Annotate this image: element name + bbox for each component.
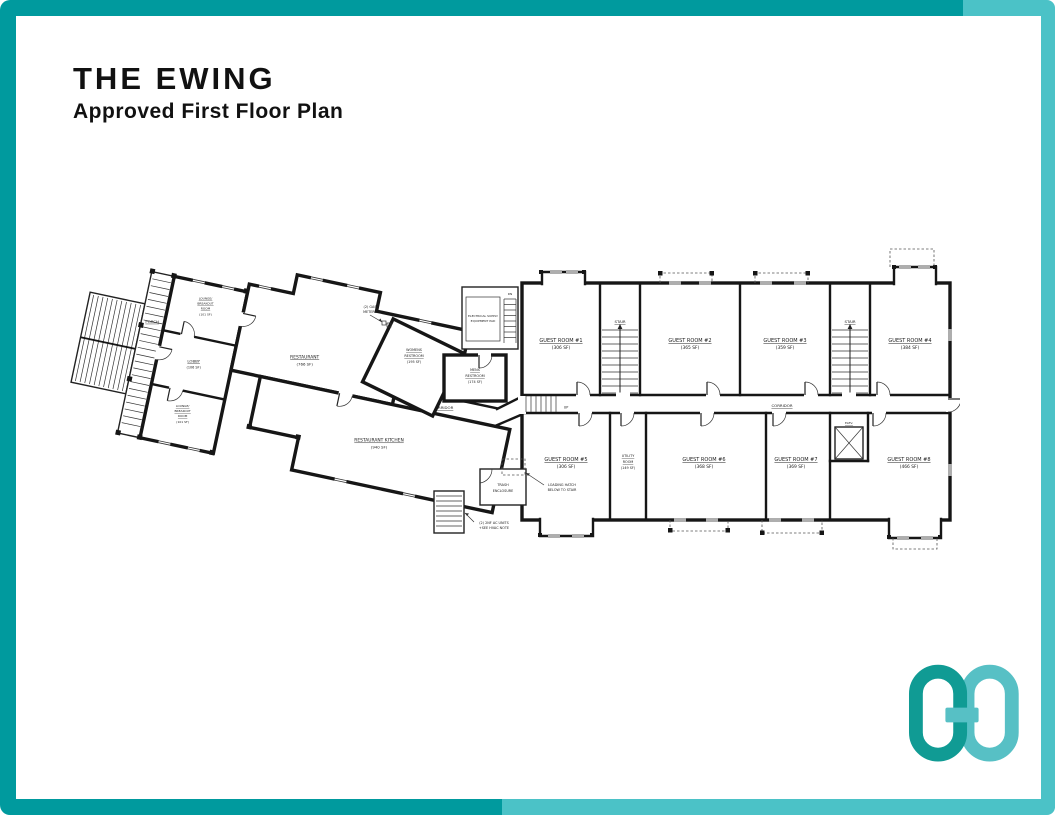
east-wing: GUEST ROOM #1 (306 SF) GUEST ROOM #2 (36…: [495, 249, 960, 549]
title-block: THE EWING Approved First Floor Plan: [73, 62, 343, 123]
svg-text:(195 SF): (195 SF): [407, 360, 422, 364]
svg-text:RESTAURANT KITCHEN: RESTAURANT KITCHEN: [354, 438, 403, 444]
svg-text:GUEST ROOM #4: GUEST ROOM #4: [888, 338, 931, 344]
svg-text:ENCLOSURE: ENCLOSURE: [493, 489, 514, 493]
room-label-stair-west: STAIR: [614, 319, 625, 324]
svg-text:(369 SF): (369 SF): [787, 464, 806, 470]
east-wing-outer-walls: [522, 283, 950, 520]
page-subtitle: Approved First Floor Plan: [73, 100, 343, 123]
svg-text:GUEST ROOM #3: GUEST ROOM #3: [763, 338, 806, 344]
svg-text:(384 SF): (384 SF): [901, 345, 920, 351]
svg-text:LOUNGE/: LOUNGE/: [176, 404, 191, 408]
svg-text:UTILITY: UTILITY: [622, 454, 636, 458]
svg-text:GUEST ROOM #1: GUEST ROOM #1: [539, 338, 582, 344]
svg-text:LOADING HATCH: LOADING HATCH: [548, 483, 576, 487]
svg-text:(2) 2NF AC UNITS: (2) 2NF AC UNITS: [479, 521, 509, 525]
frame-top-bar: [0, 0, 963, 16]
svg-text:RESTROOM: RESTROOM: [465, 374, 484, 378]
svg-text:ROOM: ROOM: [201, 307, 211, 311]
room-label-stair-east: STAIR: [844, 319, 855, 324]
trash-enclosure: TRASH ENCLOSURE: [480, 469, 526, 505]
svg-text:GUEST ROOM #2: GUEST ROOM #2: [668, 338, 711, 344]
room-label-porch: PORCH: [145, 319, 159, 324]
svg-text:(106 SF): (106 SF): [186, 365, 201, 369]
svg-text:LOUNGE/: LOUNGE/: [199, 297, 214, 301]
svg-text:+SEE HVAC NOTE: +SEE HVAC NOTE: [479, 526, 509, 530]
back-stair: [434, 491, 464, 533]
svg-text:(101 SF): (101 SF): [176, 420, 189, 424]
room-label-corridor-east: CORRIDOR: [771, 403, 792, 408]
brand-logo: [903, 660, 1021, 770]
svg-text:GUEST ROOM #7: GUEST ROOM #7: [774, 457, 817, 463]
svg-text:(306 SF): (306 SF): [557, 464, 576, 470]
floor-plan-drawing: PORCH LOUNGE/ BREAKOUT ROOM (101 SF) LOB…: [60, 235, 960, 555]
mens-restroom-walls: [444, 355, 506, 401]
svg-text:GUEST ROOM #5: GUEST ROOM #5: [544, 457, 587, 463]
svg-text:GUEST ROOM #8: GUEST ROOM #8: [887, 457, 930, 463]
svg-text:(174 SF): (174 SF): [468, 380, 483, 384]
svg-text:(766 SF): (766 SF): [296, 361, 313, 366]
frame-left-bar: [0, 10, 16, 800]
svg-text:GUEST ROOM #6: GUEST ROOM #6: [682, 457, 725, 463]
frame-right-bar: [1041, 8, 1055, 808]
svg-text:RESTROOM: RESTROOM: [404, 354, 423, 358]
svg-text:ELECTRICAL SUPPLY: ELECTRICAL SUPPLY: [468, 314, 498, 318]
svg-text:LOBBY: LOBBY: [187, 358, 200, 363]
svg-text:BREAKOUT: BREAKOUT: [197, 302, 213, 306]
svg-text:(368 SF): (368 SF): [695, 464, 714, 470]
svg-text:BREAKOUT: BREAKOUT: [174, 409, 190, 413]
svg-text:BELOW TO STAIR: BELOW TO STAIR: [548, 488, 577, 492]
page-title: THE EWING: [73, 62, 343, 96]
up-label: UP: [564, 406, 569, 410]
svg-text:(101 SF): (101 SF): [199, 313, 212, 317]
svg-text:WOMENS: WOMENS: [406, 348, 422, 352]
frame-bottom-bar-dark: [0, 799, 502, 815]
svg-text:(940 SF): (940 SF): [371, 445, 388, 450]
room-label-elevator: ELEV.: [845, 421, 853, 425]
svg-text:ROOM: ROOM: [178, 414, 188, 418]
svg-text:(306 SF): (306 SF): [552, 345, 571, 351]
svg-text:TRASH: TRASH: [496, 483, 509, 487]
svg-text:(466 SF): (466 SF): [900, 464, 919, 470]
interlocking-rings-icon: [916, 672, 1012, 755]
svg-text:RESTAURANT: RESTAURANT: [290, 354, 319, 360]
dn-label: DN: [508, 292, 513, 296]
ac-units-note: (2) 2NF AC UNITS +SEE HVAC NOTE: [465, 513, 509, 530]
svg-text:(359 SF): (359 SF): [776, 345, 795, 351]
svg-text:(365 SF): (365 SF): [681, 345, 700, 351]
svg-text:ROOM: ROOM: [623, 460, 634, 464]
electrical-pad: ELECTRICAL SUPPLY EQUIPMENT PAD: [462, 287, 518, 349]
svg-text:MENS: MENS: [470, 368, 480, 372]
svg-text:(2) GAS: (2) GAS: [364, 305, 377, 309]
svg-text:(149 SF): (149 SF): [621, 466, 636, 470]
svg-text:METERS: METERS: [363, 310, 377, 314]
svg-text:EQUIPMENT PAD: EQUIPMENT PAD: [471, 319, 496, 323]
room-label-womens-restroom: WOMENS RESTROOM (195 SF): [404, 348, 423, 364]
frame-bottom-bar-light: [502, 799, 1055, 815]
